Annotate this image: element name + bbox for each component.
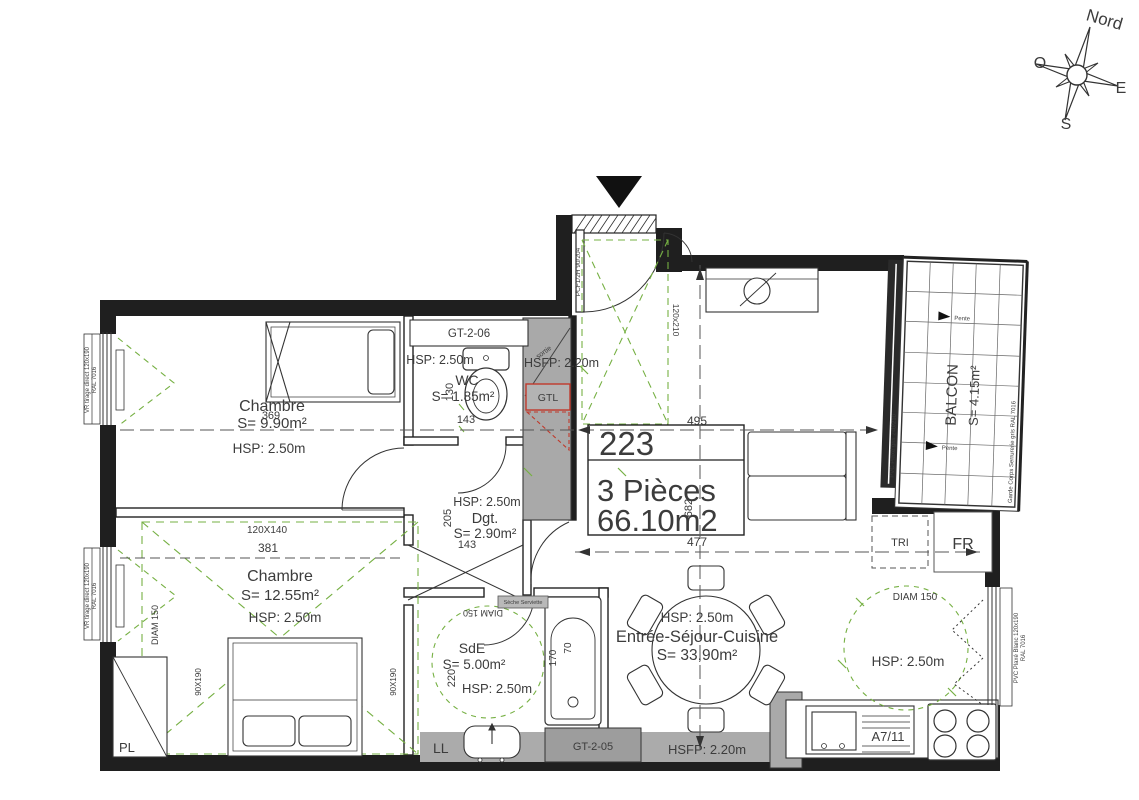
pente2-label: Pente: [942, 446, 959, 453]
entrance-arrow-icon: [596, 176, 642, 208]
dgt-height: HSP: 2.50m: [453, 495, 520, 509]
sde-diam-label: DIAM 150: [463, 608, 503, 618]
unit-number: 223: [599, 425, 654, 462]
sejour-height: HSP: 2.50m: [661, 610, 734, 625]
chambre2-diam-label: DIAM 150: [150, 605, 160, 645]
seche-serviette-label: Sèche Serviette: [504, 600, 543, 606]
balcon-area: S= 4.15m²: [966, 365, 983, 426]
sejour-dim-bottom: 477: [687, 535, 707, 549]
floor-plan-page: Nord O E S: [0, 0, 1139, 800]
bottom-soffit: LL GT-2-05 HSFP: 2.20m GT-2-04: [420, 692, 802, 768]
floor-plan: Nord O E S: [0, 0, 1139, 800]
room-wc: GT-2-06 HSP: 2.50m WC S= 1.85m² 130 143: [406, 320, 528, 493]
ll-label: LL: [433, 740, 449, 756]
room-sde: Sèche Serviette DIAM 150 SdE S= 5.00m² H…: [432, 596, 601, 725]
wc-area: S= 1.85m²: [432, 389, 495, 404]
wc-dim-v: 130: [444, 383, 456, 401]
gt206-label: GT-2-06: [448, 328, 490, 340]
console-table: [706, 268, 818, 312]
sde-name: SdE: [459, 640, 485, 656]
bath-dim-length: 170: [548, 649, 559, 666]
compass-east-label: E: [1116, 80, 1127, 97]
dgt-name: Dgt.: [472, 511, 499, 527]
chambre2-left-size: 90X190: [194, 668, 203, 696]
room-chambre1: Chambre 369 S= 9.90m² HSP: 2.50m: [116, 322, 404, 510]
balcon-name: BALCON: [943, 364, 962, 426]
chambre1-area: S= 9.90m²: [237, 415, 307, 432]
left-bottom-window-spec: VR tirage direct 120x190: [85, 562, 91, 629]
dgt-dim-h: 143: [458, 539, 476, 551]
left-bottom-window-spec2: RAL 7016: [92, 582, 98, 609]
fridge-tri: TRI FR: [872, 512, 992, 572]
hsfp-kitchen-label: HSFP: 2.20m: [668, 742, 746, 757]
left-top-window-spec: VR tirage direct 120x190: [85, 346, 91, 413]
sejour-name: Entrée-Séjour-Cuisine: [616, 628, 778, 646]
wc-name: WC: [455, 372, 478, 388]
compass-south-label: S: [1061, 116, 1072, 133]
compass-north-label: Nord: [1084, 6, 1125, 34]
chambre2-zone-size: 120X140: [247, 525, 287, 536]
sofa: [748, 432, 856, 520]
bath-dim-width: 70: [563, 642, 574, 654]
chambre1-height: HSP: 2.50m: [233, 441, 306, 456]
sejour-dim-vertical: 682: [683, 499, 695, 517]
room-chambre2: PL 120X140 381 Chambre S= 12.55m² HSP: 2…: [113, 522, 418, 757]
right-window-spec: PVC Plaxé Blanc 120x190: [1014, 612, 1020, 683]
dgt-dim-v: 205: [442, 509, 454, 527]
closet-pl: PL: [113, 657, 167, 757]
balcony: BALCON S= 4.15m² Pente Pente PVC Plaxé g…: [880, 257, 1028, 512]
sejour-diam-label: DIAM 150: [893, 592, 938, 603]
left-top-window-spec2: RAL 7016: [92, 366, 98, 393]
sejour-area: S= 33,90m²: [657, 647, 738, 664]
chambre2-height: HSP: 2.50m: [249, 610, 322, 625]
pente1-label: Pente: [954, 316, 971, 323]
chambre2-name: Chambre: [247, 568, 313, 585]
sde-height: HSP: 2.50m: [462, 681, 532, 696]
chambre2-right-size: 90X190: [389, 668, 398, 696]
hob: [928, 704, 996, 760]
sejour-dim-top: 495: [687, 414, 707, 428]
washbasin: [464, 724, 520, 762]
chambre2-area: S= 12.55m²: [241, 587, 319, 604]
wc-dim-h: 143: [457, 414, 475, 426]
unit-label-box: 223 3 Pièces 66.10m2: [588, 425, 744, 538]
hsfp-gaine-label: HSFP: 2.20m: [524, 356, 599, 370]
gtl-label: GTL: [538, 392, 559, 404]
kitchen-unit-label: A7/11: [871, 729, 904, 744]
right-window-spec2: RAL 7016: [1021, 634, 1027, 661]
sejour-height2: HSP: 2.50m: [872, 654, 945, 669]
entry-door-spec-label: PCF1/2H 90/204: [575, 247, 582, 296]
compass-rose-icon: Nord O E S: [1034, 6, 1127, 133]
tri-label: TRI: [891, 537, 909, 549]
bed-chambre1: [266, 322, 400, 402]
compass-west-label: O: [1034, 55, 1046, 72]
chambre2-dim: 381: [258, 541, 278, 555]
gt205-label: GT-2-05: [573, 741, 613, 753]
bed-chambre2: [228, 638, 362, 756]
wc-height: HSP: 2.50m: [406, 353, 473, 367]
entry-zone-size-label: 120x210: [671, 304, 681, 337]
sde-dim-v: 220: [446, 669, 458, 687]
pl-label: PL: [119, 740, 135, 755]
